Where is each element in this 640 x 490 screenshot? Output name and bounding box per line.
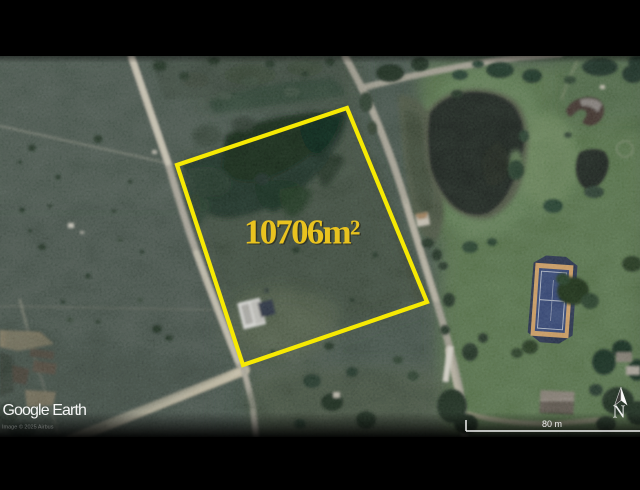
svg-text:Image © 2025 Airbus: Image © 2025 Airbus bbox=[2, 424, 54, 431]
svg-text:Google Earth: Google Earth bbox=[3, 402, 86, 419]
svg-text:N: N bbox=[613, 402, 626, 422]
svg-text:80 m: 80 m bbox=[542, 419, 562, 429]
svg-text:10706m²: 10706m² bbox=[244, 213, 360, 252]
